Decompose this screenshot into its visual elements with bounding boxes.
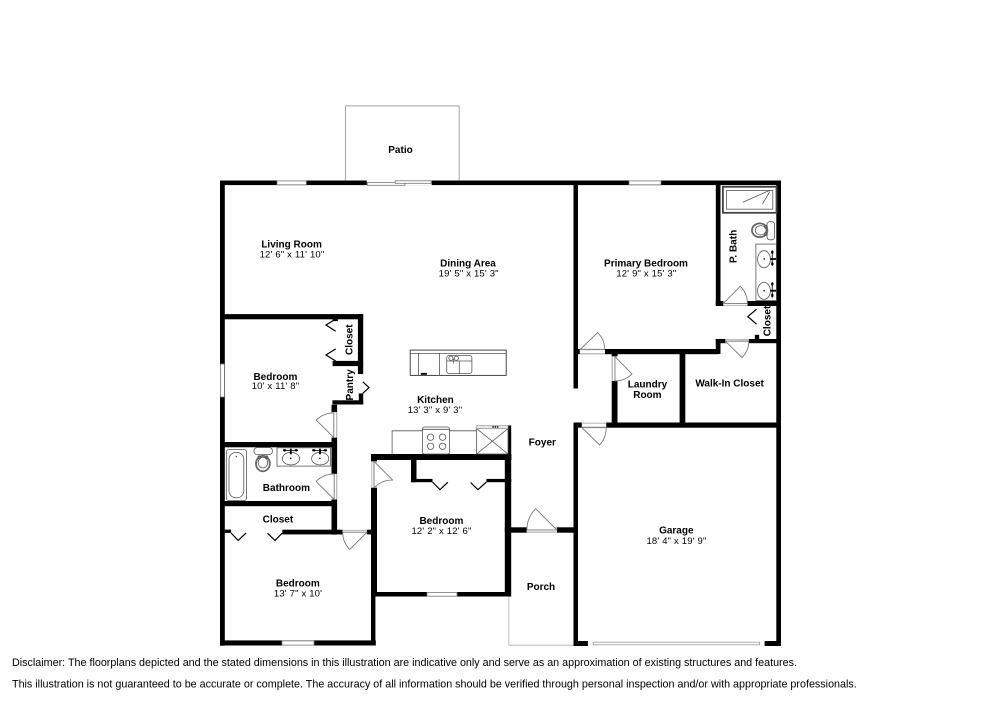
- svg-text:12' 2" x 12' 6": 12' 2" x 12' 6": [411, 526, 471, 537]
- svg-text:Room: Room: [633, 390, 661, 401]
- svg-text:Porch: Porch: [527, 582, 555, 593]
- svg-text:Garage: Garage: [659, 526, 694, 537]
- svg-text:Walk-In Closet: Walk-In Closet: [695, 379, 764, 390]
- svg-text:Pantry: Pantry: [345, 369, 356, 401]
- svg-text:12' 9" x 15' 3": 12' 9" x 15' 3": [616, 269, 676, 280]
- svg-text:13' 7" x 10': 13' 7" x 10': [274, 589, 322, 600]
- svg-text:Foyer: Foyer: [529, 438, 556, 449]
- svg-text:Patio: Patio: [388, 145, 412, 156]
- svg-text:10' x 11' 8": 10' x 11' 8": [252, 381, 300, 392]
- svg-text:Closet: Closet: [344, 324, 355, 355]
- svg-text:Disclaimer: The floorplans dep: Disclaimer: The floorplans depicted and …: [12, 657, 797, 669]
- svg-text:Closet: Closet: [762, 305, 773, 336]
- svg-text:Closet: Closet: [263, 514, 294, 525]
- svg-text:Bathroom: Bathroom: [263, 483, 310, 494]
- svg-text:19' 5" x 15' 3": 19' 5" x 15' 3": [439, 269, 499, 280]
- svg-text:P. Bath: P. Bath: [728, 230, 739, 263]
- svg-text:12' 6" x 11' 10": 12' 6" x 11' 10": [260, 250, 325, 261]
- svg-text:13' 3" x 9' 3": 13' 3" x 9' 3": [408, 405, 463, 416]
- svg-text:Laundry: Laundry: [628, 380, 668, 391]
- svg-text:18' 4" x 19' 9": 18' 4" x 19' 9": [646, 536, 706, 547]
- svg-text:This illustration is not guara: This illustration is not guaranteed to b…: [12, 679, 857, 691]
